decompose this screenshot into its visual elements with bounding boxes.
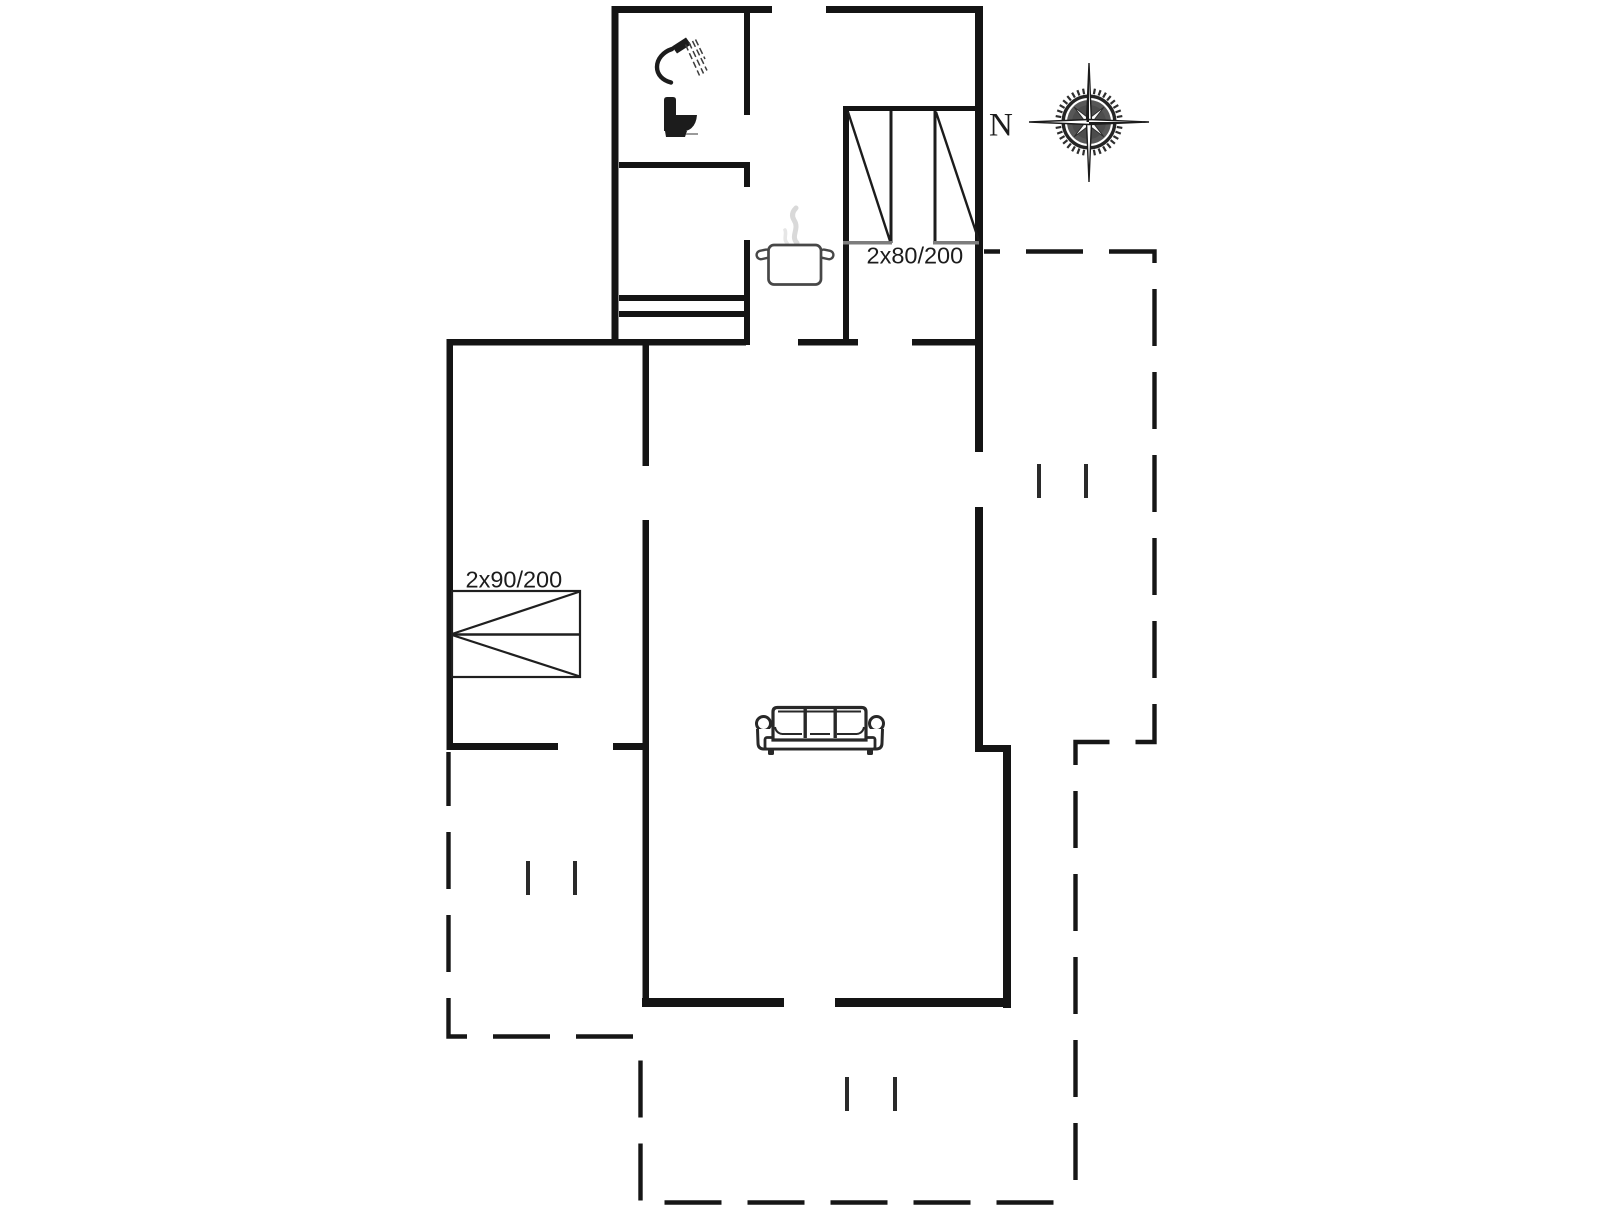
svg-text:2x80/200: 2x80/200 — [867, 243, 964, 269]
svg-text:2x90/200: 2x90/200 — [466, 567, 563, 593]
svg-text:N: N — [989, 108, 1013, 144]
